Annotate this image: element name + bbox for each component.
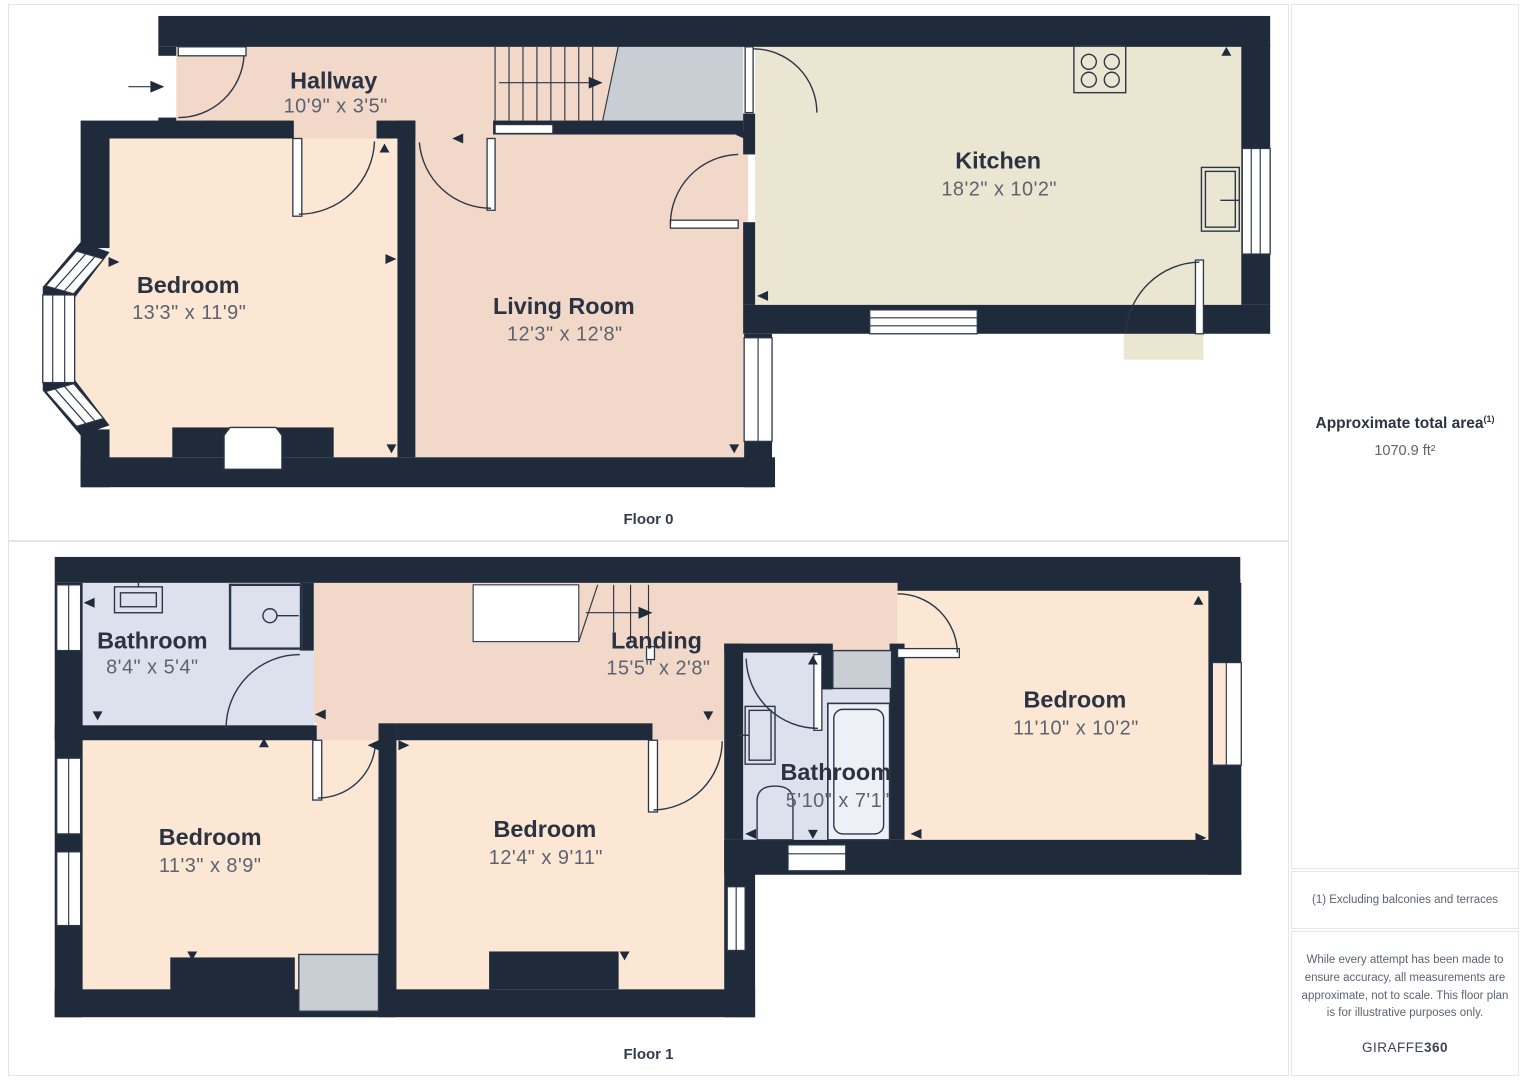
bedroom-middle-label: Bedroom (494, 816, 597, 842)
bedroom-label: Bedroom (137, 272, 240, 298)
bay-window-middle (43, 295, 75, 383)
bedroom-dims: 13'3" x 11'9" (132, 302, 246, 324)
info-sidebar: Approximate total area(1) 1070.9 ft² (1)… (1291, 4, 1519, 1076)
total-area-box: Approximate total area(1) 1070.9 ft² (1291, 4, 1519, 869)
total-area-value: 1070.9 ft² (1374, 443, 1435, 459)
floor-0-caption: Floor 0 (9, 511, 1288, 528)
living-room-label: Living Room (493, 293, 635, 319)
bathroom-top-label: Bathroom (97, 628, 208, 654)
bedroom-left-label: Bedroom (159, 824, 262, 850)
kitchen-side-window (1242, 148, 1270, 254)
floor-0-plan: Hallway 10'9" x 3'5" Bedroom 13'3" x 11'… (9, 5, 1288, 540)
bathroom-mid-window (788, 845, 846, 871)
front-door-leaf (178, 47, 246, 56)
landing-label: Landing (611, 628, 702, 654)
bathroom-mid-dims: 5'10" x 7'1" (786, 790, 890, 812)
living-room-dims: 12'3" x 12'8" (507, 324, 623, 346)
floor-1-plan: Bathroom 8'4" x 5'4" Landing 15'5" x 2'8… (9, 542, 1288, 1075)
footnote-box: (1) Excluding balconies and terraces (1291, 871, 1519, 929)
floor-0-panel: Hallway 10'9" x 3'5" Bedroom 13'3" x 11'… (8, 4, 1289, 541)
footnote-text: (1) Excluding balconies and terraces (1312, 894, 1498, 906)
footnote-marker: (1) (1483, 414, 1494, 424)
bedroom-left-dims: 11'3" x 8'9" (159, 855, 262, 877)
hearth-recess (299, 954, 379, 1011)
chimney-breast-left (170, 957, 295, 991)
bedroom-middle-dims: 12'4" x 9'11" (489, 847, 603, 869)
disclaimer-text: While every attempt has been made to ens… (1301, 952, 1509, 1023)
stair-void (473, 585, 579, 642)
landing-dims: 15'5" x 2'8" (606, 658, 710, 680)
kitchen-bottom-window (870, 310, 978, 334)
bathroom-top-dims: 8'4" x 5'4" (106, 657, 199, 679)
fireplace (224, 427, 282, 469)
kitchen-label: Kitchen (955, 147, 1041, 173)
stair-landing-gray (603, 45, 743, 121)
hallway-dims: 10'9" x 3'5" (284, 96, 388, 118)
disclaimer-box: While every attempt has been made to ens… (1291, 931, 1519, 1076)
floor-1-panel: Bathroom 8'4" x 5'4" Landing 15'5" x 2'8… (8, 541, 1289, 1076)
bedroom-right-label: Bedroom (1024, 686, 1127, 712)
entry-arrow (150, 81, 164, 93)
bedroom-right-dims: 11'10" x 10'2" (1013, 717, 1139, 739)
floor-1-caption: Floor 1 (9, 1046, 1288, 1063)
hallway-label: Hallway (290, 68, 377, 94)
floorplan-panels: Hallway 10'9" x 3'5" Bedroom 13'3" x 11'… (8, 4, 1289, 1076)
bathroom-cupboard (833, 651, 892, 689)
kitchen-dims: 18'2" x 10'2" (941, 178, 1057, 200)
giraffe360-logo: GIRAFFE360 (1300, 1040, 1510, 1055)
floor-0-room-fills (75, 45, 1242, 457)
bathroom-mid-label: Bathroom (781, 759, 892, 785)
chimney-breast-middle (489, 951, 619, 989)
total-area-title: Approximate total area(1) (1316, 414, 1495, 433)
kitchen-floor (755, 45, 1241, 305)
living-room-floor (415, 121, 748, 458)
